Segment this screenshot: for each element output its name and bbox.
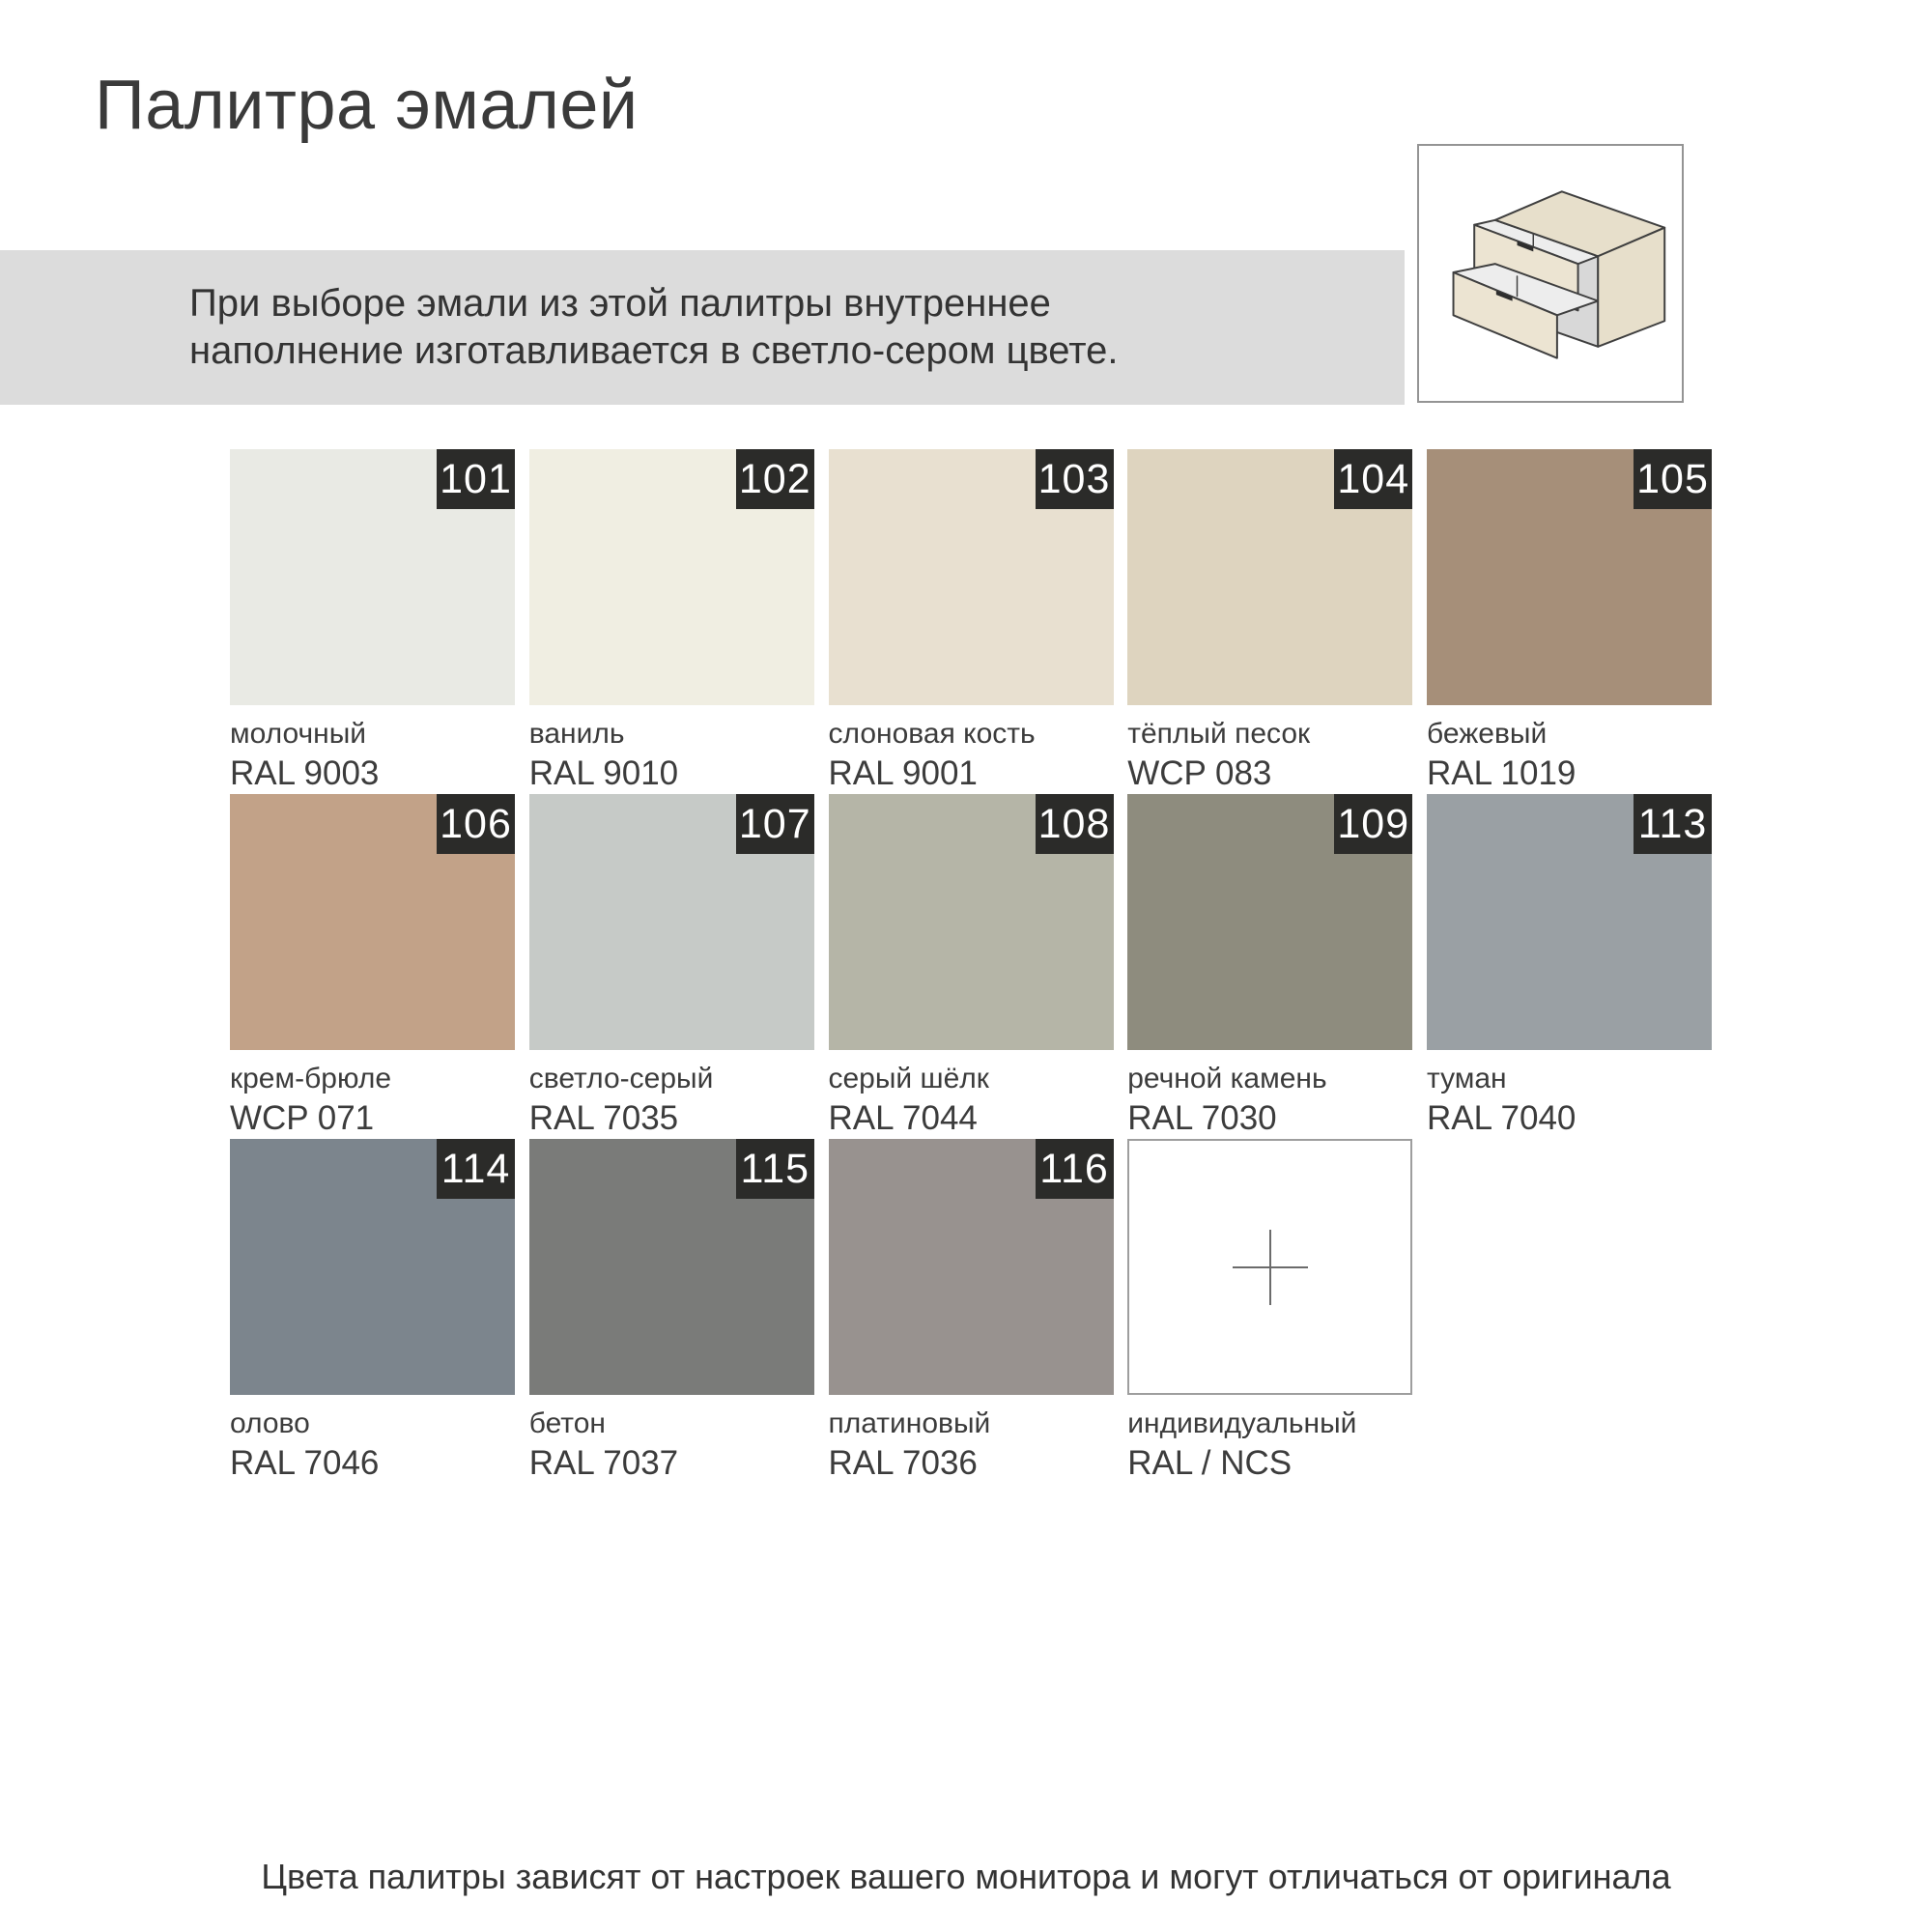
palette-page: Палитра эмалей При выборе эмали из этой … bbox=[0, 0, 1932, 1932]
swatch-standard-code: RAL 7044 bbox=[829, 1099, 1114, 1138]
swatch-cell: 102 ваниль RAL 9010 bbox=[529, 449, 814, 794]
swatch-standard-code: WCP 083 bbox=[1127, 754, 1412, 793]
info-banner: При выборе эмали из этой палитры внутрен… bbox=[0, 250, 1405, 405]
swatch-standard-code: RAL 7037 bbox=[529, 1444, 814, 1483]
swatch-code-badge: 103 bbox=[1036, 449, 1114, 509]
swatch-standard-code: RAL 7046 bbox=[230, 1444, 515, 1483]
swatch-standard-code: RAL 9001 bbox=[829, 754, 1114, 793]
swatch-cell: 108 серый шёлк RAL 7044 bbox=[829, 794, 1114, 1139]
swatch-standard-code: RAL 7036 bbox=[829, 1444, 1114, 1483]
swatch-name: речной камень bbox=[1127, 1063, 1412, 1095]
swatch-name: тёплый песок bbox=[1127, 718, 1412, 751]
swatch-code-badge: 106 bbox=[437, 794, 515, 854]
swatch-standard-code: RAL 7035 bbox=[529, 1099, 814, 1138]
drawer-cabinet-illustration-frame bbox=[1417, 144, 1684, 403]
swatch-color: 104 bbox=[1127, 449, 1412, 705]
swatch-code-badge: 105 bbox=[1634, 449, 1712, 509]
swatch-cell: 115 бетон RAL 7037 bbox=[529, 1139, 814, 1484]
swatch-color: 101 bbox=[230, 449, 515, 705]
swatch-code-badge: 102 bbox=[736, 449, 814, 509]
footer-disclaimer: Цвета палитры зависят от настроек вашего… bbox=[0, 1857, 1932, 1897]
swatch-code-badge: 116 bbox=[1036, 1139, 1114, 1199]
swatch-code-badge: 115 bbox=[736, 1139, 814, 1199]
swatch-color: 105 bbox=[1427, 449, 1712, 705]
swatch-standard-code: WCP 071 bbox=[230, 1099, 515, 1138]
swatch-grid: 101 молочный RAL 9003 102 ваниль RAL 901… bbox=[230, 449, 1712, 1484]
swatch-name: серый шёлк bbox=[829, 1063, 1114, 1095]
swatch-code-badge: 114 bbox=[437, 1139, 515, 1199]
swatch-color: 103 bbox=[829, 449, 1114, 705]
swatch-code-badge: 107 bbox=[736, 794, 814, 854]
swatch-cell: 113 туман RAL 7040 bbox=[1427, 794, 1712, 1139]
swatch-code-badge: 113 bbox=[1634, 794, 1712, 854]
swatch-name: олово bbox=[230, 1407, 515, 1440]
swatch-cell: 104 тёплый песок WCP 083 bbox=[1127, 449, 1412, 794]
swatch-cell: 107 светло-серый RAL 7035 bbox=[529, 794, 814, 1139]
swatch-name: бетон bbox=[529, 1407, 814, 1440]
swatch-code-badge: 109 bbox=[1334, 794, 1412, 854]
swatch-name: крем-брюле bbox=[230, 1063, 515, 1095]
swatch-name: молочный bbox=[230, 718, 515, 751]
swatch-color bbox=[1127, 1139, 1412, 1395]
swatch-color: 115 bbox=[529, 1139, 814, 1395]
swatch-color: 108 bbox=[829, 794, 1114, 1050]
swatch-name: туман bbox=[1427, 1063, 1712, 1095]
page-title: Палитра эмалей bbox=[95, 68, 639, 144]
swatch-color: 116 bbox=[829, 1139, 1114, 1395]
swatch-cell: индивидуальный RAL / NCS bbox=[1127, 1139, 1412, 1484]
swatch-code-badge: 108 bbox=[1036, 794, 1114, 854]
swatch-color: 106 bbox=[230, 794, 515, 1050]
swatch-color: 102 bbox=[529, 449, 814, 705]
swatch-color: 113 bbox=[1427, 794, 1712, 1050]
swatch-standard-code: RAL 7040 bbox=[1427, 1099, 1712, 1138]
drawer-cabinet-icon bbox=[1419, 146, 1682, 401]
swatch-name: светло-серый bbox=[529, 1063, 814, 1095]
swatch-cell: 103 слоновая кость RAL 9001 bbox=[829, 449, 1114, 794]
swatch-standard-code: RAL 9010 bbox=[529, 754, 814, 793]
swatch-name: ваниль bbox=[529, 718, 814, 751]
swatch-color: 114 bbox=[230, 1139, 515, 1395]
swatch-name: слоновая кость bbox=[829, 718, 1114, 751]
swatch-cell: 106 крем-брюле WCP 071 bbox=[230, 794, 515, 1139]
swatch-standard-code: RAL 7030 bbox=[1127, 1099, 1412, 1138]
swatch-name: бежевый bbox=[1427, 718, 1712, 751]
swatch-code-badge: 104 bbox=[1334, 449, 1412, 509]
swatch-cell: 109 речной камень RAL 7030 bbox=[1127, 794, 1412, 1139]
swatch-name: платиновый bbox=[829, 1407, 1114, 1440]
info-banner-line-2: наполнение изготавливается в светло-серо… bbox=[189, 327, 1405, 375]
swatch-cell: 101 молочный RAL 9003 bbox=[230, 449, 515, 794]
swatch-cell: 105 бежевый RAL 1019 bbox=[1427, 449, 1712, 794]
swatch-standard-code: RAL / NCS bbox=[1127, 1444, 1412, 1483]
swatch-color: 107 bbox=[529, 794, 814, 1050]
swatch-standard-code: RAL 9003 bbox=[230, 754, 515, 793]
info-banner-line-1: При выборе эмали из этой палитры внутрен… bbox=[189, 280, 1405, 327]
swatch-color: 109 bbox=[1127, 794, 1412, 1050]
swatch-cell: 114 олово RAL 7046 bbox=[230, 1139, 515, 1484]
swatch-standard-code: RAL 1019 bbox=[1427, 754, 1712, 793]
swatch-cell: 116 платиновый RAL 7036 bbox=[829, 1139, 1114, 1484]
swatch-name: индивидуальный bbox=[1127, 1407, 1412, 1440]
swatch-code-badge: 101 bbox=[437, 449, 515, 509]
